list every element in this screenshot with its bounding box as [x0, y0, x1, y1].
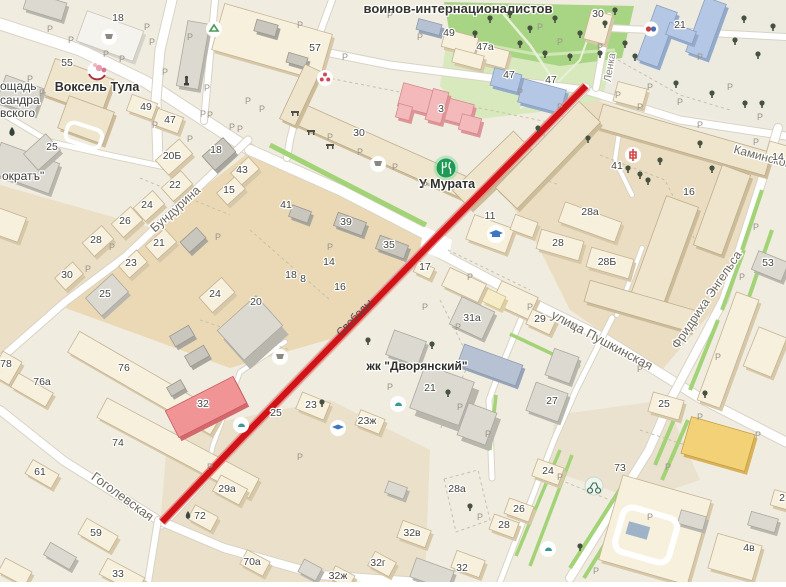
svg-text:70а: 70а — [243, 556, 261, 568]
svg-text:Р: Р — [753, 137, 759, 147]
svg-text:32г: 32г — [370, 557, 386, 569]
svg-text:17: 17 — [419, 261, 431, 273]
svg-text:Р: Р — [697, 52, 703, 62]
svg-text:Р: Р — [327, 242, 333, 252]
svg-text:78: 78 — [0, 358, 12, 370]
svg-text:Р: Р — [297, 20, 303, 30]
svg-text:28: 28 — [498, 519, 510, 531]
svg-text:47а: 47а — [476, 41, 494, 53]
svg-text:22: 22 — [169, 179, 181, 191]
svg-text:41: 41 — [611, 160, 623, 172]
svg-text:76а: 76а — [33, 376, 51, 388]
svg-text:28: 28 — [552, 237, 564, 249]
svg-text:Р: Р — [593, 566, 599, 576]
svg-text:15: 15 — [223, 184, 235, 196]
svg-text:31а: 31а — [463, 312, 481, 324]
svg-text:43: 43 — [236, 164, 248, 176]
svg-text:11: 11 — [485, 210, 496, 222]
svg-text:Р: Р — [357, 147, 363, 157]
svg-text:Р: Р — [187, 134, 193, 144]
svg-text:21: 21 — [153, 237, 165, 249]
svg-text:4в: 4в — [743, 542, 755, 554]
svg-text:14: 14 — [323, 256, 335, 268]
svg-text:Р: Р — [187, 32, 193, 42]
svg-text:Р: Р — [517, 87, 523, 97]
svg-text:Р: Р — [207, 110, 213, 120]
svg-text:18: 18 — [112, 12, 124, 24]
svg-text:59: 59 — [90, 527, 102, 539]
svg-text:Р: Р — [467, 272, 473, 282]
svg-text:Р: Р — [697, 412, 703, 422]
svg-text:72: 72 — [194, 510, 206, 522]
svg-text:41: 41 — [280, 199, 292, 211]
svg-text:Р: Р — [637, 364, 643, 374]
svg-text:28Б: 28Б — [598, 256, 617, 268]
svg-text:32ж: 32ж — [329, 570, 348, 582]
svg-text:25: 25 — [270, 407, 282, 419]
svg-text:32в: 32в — [403, 527, 421, 539]
svg-text:вского: вского — [0, 106, 35, 120]
svg-text:Р: Р — [455, 322, 461, 332]
svg-text:Р: Р — [477, 512, 483, 522]
svg-text:14: 14 — [772, 151, 784, 163]
svg-text:Р: Р — [215, 232, 221, 242]
svg-text:47: 47 — [503, 69, 515, 81]
svg-text:Р: Р — [387, 382, 393, 392]
svg-text:Р: Р — [457, 402, 463, 412]
svg-text:Р: Р — [697, 120, 703, 130]
svg-text:23: 23 — [125, 257, 137, 269]
svg-text:Р: Р — [229, 122, 235, 132]
svg-text:33: 33 — [112, 568, 124, 580]
svg-text:Р: Р — [537, 22, 543, 32]
svg-text:Р: Р — [207, 462, 213, 472]
svg-text:Р: Р — [162, 67, 168, 77]
svg-text:47: 47 — [164, 114, 176, 126]
svg-text:20: 20 — [250, 296, 262, 308]
svg-text:Р: Р — [422, 180, 428, 190]
svg-text:Р: Р — [715, 352, 721, 362]
svg-text:Р: Р — [103, 49, 109, 59]
svg-text:21: 21 — [424, 382, 436, 394]
svg-text:жк "Дворянский": жк "Дворянский" — [365, 359, 467, 373]
svg-text:Р: Р — [68, 35, 74, 45]
svg-text:16: 16 — [683, 186, 695, 198]
svg-text:Р: Р — [422, 302, 428, 312]
svg-text:Р: Р — [297, 452, 303, 462]
svg-text:27: 27 — [546, 395, 558, 407]
svg-text:Р: Р — [485, 429, 491, 439]
svg-text:Р: Р — [557, 37, 563, 47]
svg-text:28а: 28а — [581, 206, 599, 218]
svg-text:47: 47 — [545, 74, 557, 86]
svg-text:Р: Р — [615, 90, 621, 100]
svg-text:сандра: сандра — [0, 93, 40, 107]
svg-text:Р: Р — [677, 97, 683, 107]
svg-text:Р: Р — [572, 322, 578, 332]
svg-text:39: 39 — [340, 216, 352, 228]
svg-text:Р: Р — [557, 472, 563, 482]
svg-text:Р: Р — [557, 102, 563, 112]
svg-text:24: 24 — [542, 465, 554, 477]
svg-text:24: 24 — [209, 288, 221, 300]
svg-text:3: 3 — [438, 103, 444, 115]
svg-text:Р: Р — [527, 302, 533, 312]
svg-text:Воксель Тула: Воксель Тула — [55, 80, 141, 94]
svg-text:Р: Р — [739, 272, 745, 282]
svg-text:74: 74 — [112, 437, 124, 449]
svg-text:49: 49 — [443, 27, 455, 39]
svg-text:25: 25 — [99, 288, 111, 300]
svg-text:Р: Р — [757, 112, 763, 122]
svg-text:Р: Р — [237, 124, 243, 134]
svg-text:73: 73 — [614, 462, 626, 474]
svg-text:Р: Р — [109, 242, 115, 252]
svg-text:Р: Р — [647, 82, 653, 92]
svg-text:ократъ": ократъ" — [2, 169, 44, 183]
svg-text:Р: Р — [204, 83, 210, 93]
svg-text:61: 61 — [34, 466, 46, 478]
svg-text:32: 32 — [197, 398, 209, 410]
svg-text:Р: Р — [387, 10, 393, 20]
svg-text:Р: Р — [647, 512, 653, 522]
svg-text:30: 30 — [353, 127, 365, 139]
svg-text:57: 57 — [309, 42, 321, 54]
svg-text:28: 28 — [90, 234, 102, 246]
svg-text:30: 30 — [592, 8, 604, 20]
svg-text:Р: Р — [85, 264, 91, 274]
svg-text:Р: Р — [327, 132, 333, 142]
svg-text:18: 18 — [210, 144, 222, 156]
svg-text:23: 23 — [305, 399, 317, 411]
svg-text:Р: Р — [200, 109, 206, 119]
svg-text:Р: Р — [417, 32, 423, 42]
svg-text:Р: Р — [342, 52, 348, 62]
svg-text:Р: Р — [637, 102, 643, 112]
svg-text:29а: 29а — [218, 483, 236, 495]
svg-text:49: 49 — [140, 101, 152, 113]
svg-text:Р: Р — [259, 104, 265, 114]
svg-text:Р: Р — [665, 462, 671, 472]
svg-text:25: 25 — [658, 398, 670, 410]
svg-text:53: 53 — [762, 257, 774, 269]
svg-text:26: 26 — [119, 215, 131, 227]
svg-text:29: 29 — [534, 313, 546, 325]
svg-text:18: 18 — [285, 269, 297, 281]
svg-text:Р: Р — [152, 120, 158, 130]
svg-text:20Б: 20Б — [163, 150, 182, 162]
svg-text:35: 35 — [383, 239, 395, 251]
svg-text:76: 76 — [118, 362, 130, 374]
svg-text:23ж: 23ж — [358, 415, 377, 427]
svg-text:Р: Р — [39, 88, 45, 98]
svg-text:Р: Р — [27, 74, 33, 84]
svg-text:2: 2 — [779, 492, 785, 504]
svg-text:Р: Р — [392, 162, 398, 172]
svg-text:30: 30 — [61, 269, 73, 281]
svg-text:Р: Р — [119, 54, 125, 64]
svg-text:Р: Р — [245, 96, 251, 106]
svg-text:24: 24 — [141, 199, 153, 211]
svg-text:25: 25 — [46, 141, 58, 153]
svg-text:16: 16 — [334, 281, 346, 293]
svg-text:8: 8 — [300, 273, 306, 285]
svg-text:Р: Р — [149, 37, 155, 47]
svg-text:26: 26 — [513, 503, 525, 515]
svg-text:Р: Р — [727, 82, 733, 92]
svg-text:21: 21 — [674, 19, 686, 31]
svg-text:Р: Р — [47, 24, 53, 34]
svg-text:32: 32 — [456, 562, 468, 574]
svg-text:Р: Р — [144, 22, 150, 32]
svg-text:55: 55 — [61, 57, 73, 69]
svg-text:Р: Р — [753, 222, 759, 232]
svg-text:Р: Р — [755, 430, 761, 440]
svg-text:28а: 28а — [448, 483, 466, 495]
